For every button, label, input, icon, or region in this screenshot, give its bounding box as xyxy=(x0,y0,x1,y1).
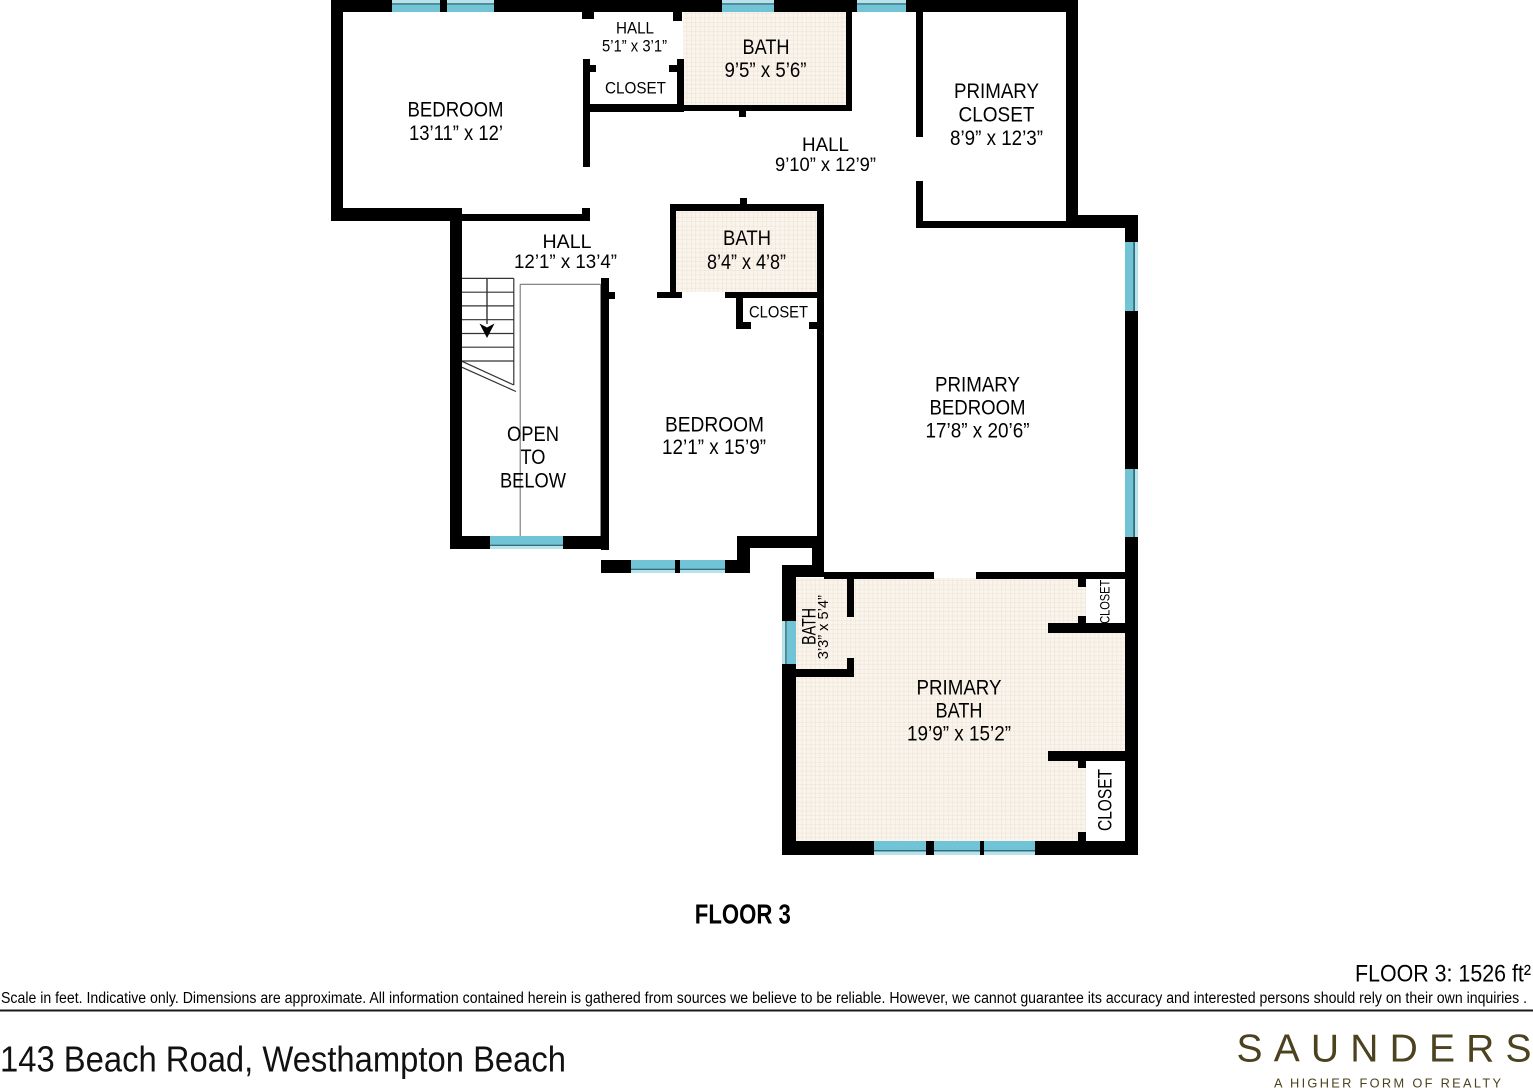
svg-text:FLOOR 3: FLOOR 3 xyxy=(695,899,791,930)
svg-text:HALL: HALL xyxy=(543,231,592,253)
svg-text:BEDROOM: BEDROOM xyxy=(930,397,1026,420)
svg-text:CLOSET: CLOSET xyxy=(749,303,808,322)
svg-text:CLOSET: CLOSET xyxy=(959,104,1035,127)
svg-text:13’11” x 12’: 13’11” x 12’ xyxy=(409,122,503,145)
svg-text:BATH: BATH xyxy=(936,700,983,723)
svg-text:HALL: HALL xyxy=(802,134,849,156)
svg-text:HALL: HALL xyxy=(616,19,654,38)
svg-text:12’1” x 13’4”: 12’1” x 13’4” xyxy=(514,251,617,273)
svg-text:3’3” x 5’4”: 3’3” x 5’4” xyxy=(815,595,832,659)
svg-text:Scale in feet. Indicative only: Scale in feet. Indicative only. Dimensio… xyxy=(1,990,1527,1007)
svg-text:CLOSET: CLOSET xyxy=(1096,769,1117,831)
svg-text:17’8” x 20’6”: 17’8” x 20’6” xyxy=(926,420,1030,443)
svg-text:A HIGHER FORM OF REALTY: A HIGHER FORM OF REALTY xyxy=(1274,1075,1501,1088)
svg-text:BELOW: BELOW xyxy=(500,470,566,493)
svg-text:BATH: BATH xyxy=(743,36,790,59)
svg-text:5’1” x 3’1”: 5’1” x 3’1” xyxy=(602,37,667,56)
svg-text:BATH: BATH xyxy=(723,227,771,250)
svg-text:9’5” x 5’6”: 9’5” x 5’6” xyxy=(725,59,807,82)
svg-text:PRIMARY: PRIMARY xyxy=(935,373,1020,396)
svg-text:CLOSET: CLOSET xyxy=(605,79,666,98)
svg-text:FLOOR 3: 1526 ft²: FLOOR 3: 1526 ft² xyxy=(1355,961,1531,988)
svg-text:8’9” x 12’3”: 8’9” x 12’3” xyxy=(950,127,1043,150)
svg-text:TO: TO xyxy=(521,446,546,469)
svg-text:143 Beach Road, Westhampton Be: 143 Beach Road, Westhampton Beach xyxy=(0,1039,566,1080)
svg-text:12’1” x 15’9”: 12’1” x 15’9” xyxy=(662,436,766,459)
svg-text:19’9” x 15’2”: 19’9” x 15’2” xyxy=(907,723,1011,746)
svg-text:CLOSET: CLOSET xyxy=(1098,580,1113,624)
svg-text:BEDROOM: BEDROOM xyxy=(665,414,764,437)
svg-text:PRIMARY: PRIMARY xyxy=(917,677,1002,700)
svg-text:PRIMARY: PRIMARY xyxy=(954,80,1039,103)
svg-text:BEDROOM: BEDROOM xyxy=(408,99,504,122)
svg-text:9’10” x 12’9”: 9’10” x 12’9” xyxy=(775,154,876,176)
svg-text:OPEN: OPEN xyxy=(507,423,559,446)
svg-text:8’4” x 4’8”: 8’4” x 4’8” xyxy=(707,251,786,274)
